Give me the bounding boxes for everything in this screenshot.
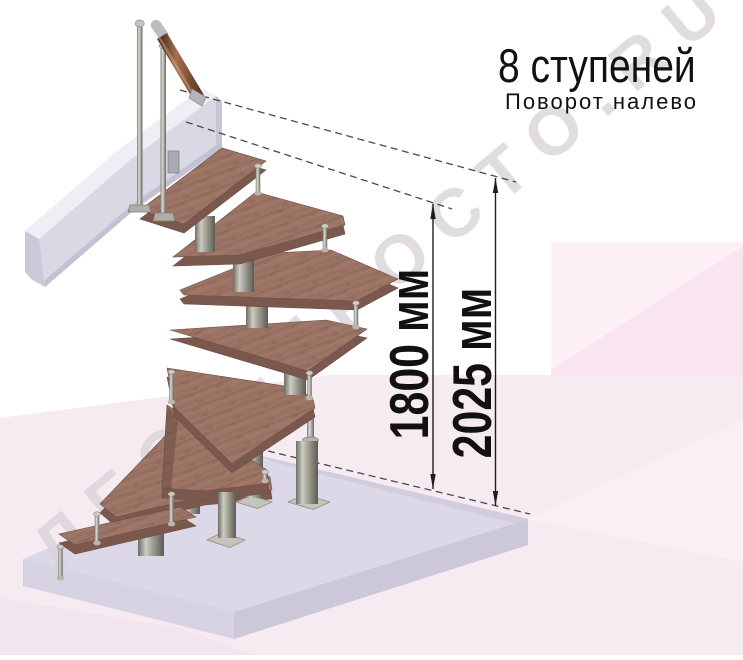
svg-text:Поворот налево: Поворот налево (505, 89, 698, 114)
svg-text:8 ступеней: 8 ступеней (498, 41, 696, 93)
svg-text:1800 мм: 1800 мм (379, 269, 440, 440)
svg-text:2025 мм: 2025 мм (442, 288, 503, 459)
